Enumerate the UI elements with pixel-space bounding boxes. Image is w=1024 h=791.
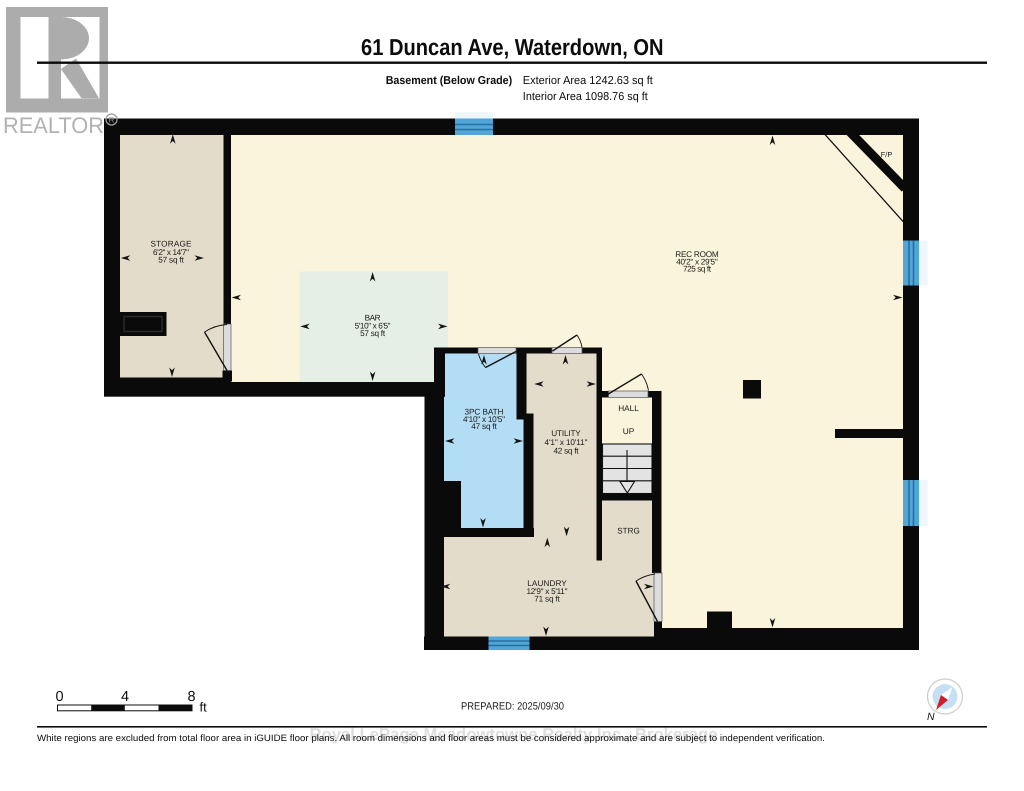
svg-text:42 sq ft: 42 sq ft — [554, 446, 580, 455]
svg-text:0: 0 — [55, 689, 63, 705]
svg-text:8: 8 — [187, 689, 195, 705]
svg-text:Exterior Area 1242.63 sq ft: Exterior Area 1242.63 sq ft — [523, 75, 654, 87]
svg-text:N: N — [927, 711, 935, 723]
svg-text:47 sq ft: 47 sq ft — [471, 422, 497, 431]
svg-text:725 sq ft: 725 sq ft — [683, 265, 712, 274]
svg-text:Interior Area 1098.76 sq ft: Interior Area 1098.76 sq ft — [523, 91, 649, 103]
svg-text:ft: ft — [200, 700, 208, 715]
svg-text:HALL: HALL — [618, 404, 639, 413]
svg-text:57 sq ft: 57 sq ft — [360, 329, 386, 338]
svg-text:White regions are excluded fro: White regions are excluded from total fl… — [37, 733, 825, 743]
svg-text:Basement (Below Grade): Basement (Below Grade) — [386, 75, 513, 87]
svg-text:71 sq ft: 71 sq ft — [534, 595, 560, 604]
svg-text:4: 4 — [121, 689, 129, 705]
svg-text:57 sq ft: 57 sq ft — [158, 255, 184, 264]
svg-text:PREPARED: 2025/09/30: PREPARED: 2025/09/30 — [461, 701, 564, 713]
svg-text:STRG: STRG — [617, 527, 640, 536]
svg-text:61 Duncan Ave, Waterdown, ON: 61 Duncan Ave, Waterdown, ON — [361, 34, 664, 60]
svg-text:F/P: F/P — [881, 150, 893, 159]
svg-text:UTILITY: UTILITY — [551, 429, 581, 438]
svg-text:UP: UP — [623, 427, 635, 436]
svg-text:R: R — [109, 116, 115, 125]
svg-text:REALTOR: REALTOR — [3, 113, 104, 138]
